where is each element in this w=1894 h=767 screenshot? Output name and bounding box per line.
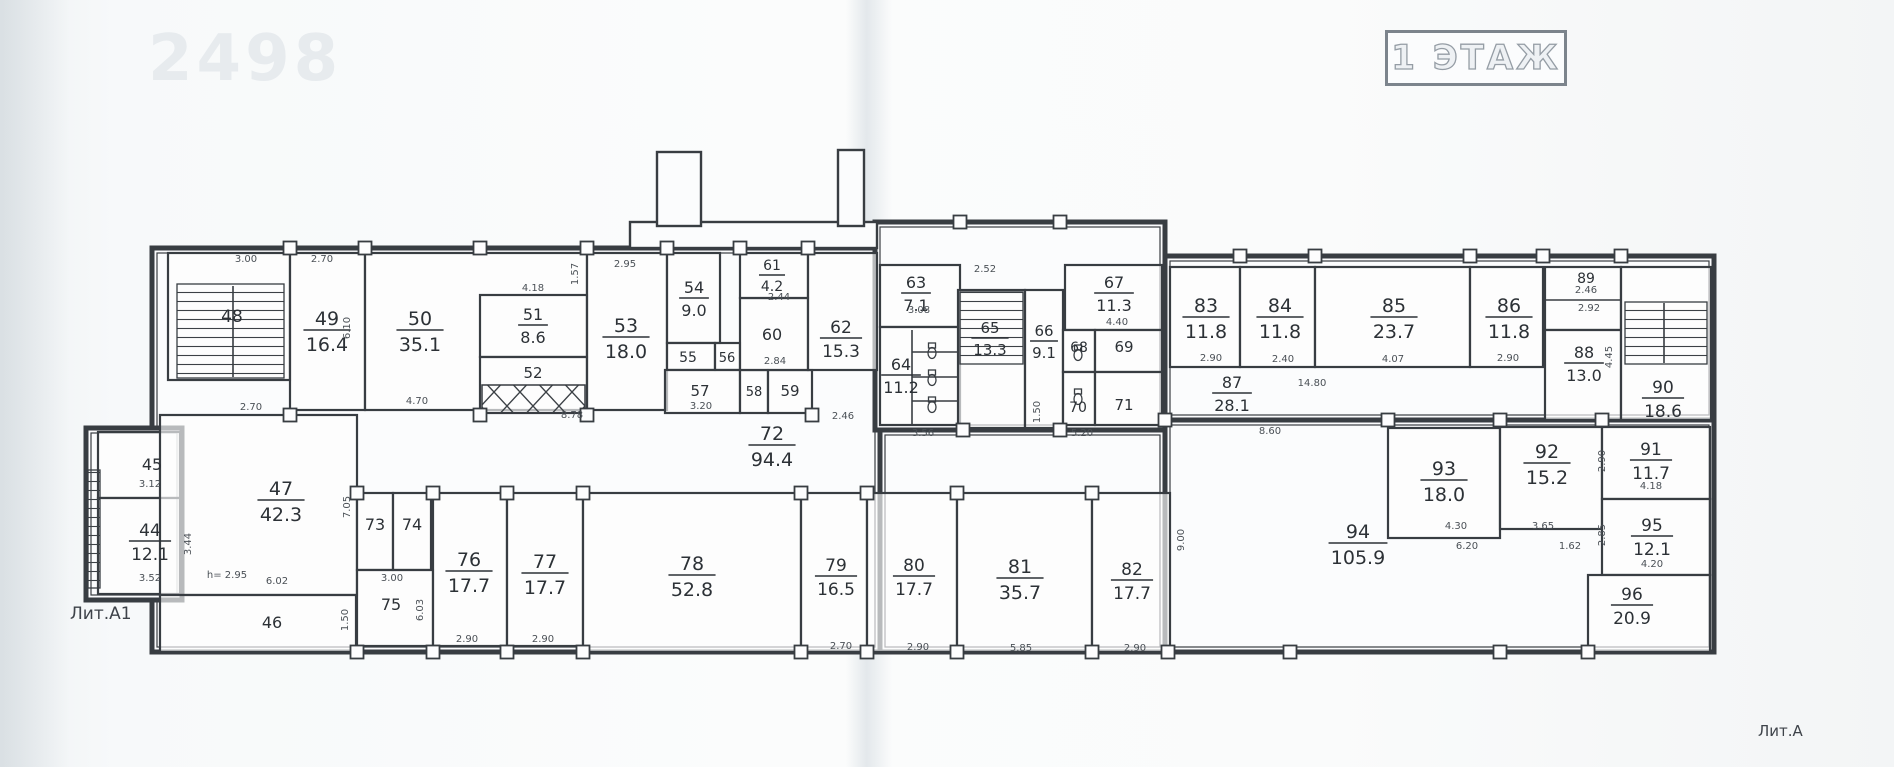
dimension-label: 5.85 [1010,643,1032,654]
dimension-label: 14.80 [1298,378,1327,389]
room-56-label: 56 [719,351,736,366]
wall-pier [501,487,514,500]
room-75-label: 75 [381,595,401,614]
wall-pier [474,409,487,422]
room-number: 92 [1535,441,1559,463]
wall-pier [954,216,967,229]
room-number: 91 [1640,440,1662,460]
floor-plan-drawing: 484916.45035.1518.6525318.0549.055565758… [0,0,1894,767]
room-59-label: 59 [780,382,799,400]
room-70-label: 70 [1069,400,1087,416]
wall-pier [661,242,674,255]
wall-pier [351,646,364,659]
shaft-cross-hatch [482,385,585,413]
room-58-label: 58 [746,385,763,400]
wall-pier [1086,646,1099,659]
room-47 [160,415,357,595]
room-number: 90 [1652,378,1674,398]
room-number: 83 [1194,295,1218,317]
room-area: 12.1 [131,545,169,565]
room-number: 61 [763,258,781,274]
room-number: 59 [780,382,799,400]
wall-pier [795,487,808,500]
room-number: 48 [221,307,243,327]
dimension-label: 8.78 [561,410,583,421]
room-number: 81 [1008,556,1032,578]
staircase-hatch [177,284,284,378]
wall-pier [501,646,514,659]
dimension-label: 2.52 [974,264,996,275]
facade-and-chimneys [630,150,877,248]
dimension-label: 2.84 [764,356,786,367]
room-45-label: 45 [142,455,162,474]
dimension-label: 2.90 [1200,353,1222,364]
wall-pier [861,646,874,659]
dimension-label: 2.70 [311,254,333,265]
dimension-label: 5.20 [1071,428,1093,439]
dimension-label: 2.70 [830,641,852,652]
wall-pier [427,487,440,500]
room-area: 94.4 [751,449,793,471]
wall-pier [951,487,964,500]
room-number: 69 [1114,338,1133,356]
room-number: 75 [381,595,401,614]
dimension-label: 3.52 [139,573,161,584]
wall-pier [1596,414,1609,427]
wall-pier [795,646,808,659]
room-area: 15.3 [822,342,860,362]
room-number: 58 [746,385,763,400]
dimension-label: 3.00 [235,254,257,265]
room-number: 45 [142,455,162,474]
dimension-label: 2.90 [1597,450,1608,472]
wall-pier [577,487,590,500]
dimension-label: 4.18 [522,283,544,294]
room-number: 68 [1070,340,1088,356]
wall-pier [1284,646,1297,659]
dimension-label: 6.03 [415,599,426,621]
room-area: 11.8 [1488,321,1530,343]
room-area: 17.7 [448,575,490,597]
dimension-label: 9.00 [1176,529,1187,551]
dimension-label: 1.50 [340,609,351,631]
room-number: 79 [825,556,847,576]
dimension-label: 3.44 [183,533,194,555]
dimension-label: 6.20 [1456,541,1478,552]
dimension-label: 2.44 [768,292,790,303]
wall-pier [1615,250,1628,263]
wall-pier [951,646,964,659]
dimension-label: 3.12 [139,479,161,490]
room-number: 73 [365,515,385,534]
wall-pier [1234,250,1247,263]
room-area: 18.0 [1423,484,1465,506]
room-area: 52.8 [671,579,713,601]
room-number: 65 [980,319,999,337]
dimension-label: 4.20 [1641,559,1663,570]
dimension-label: 4.70 [406,396,428,407]
room-area: 20.9 [1613,609,1651,629]
room-area: 11.3 [1096,296,1132,315]
room-area: 8.6 [520,328,545,347]
wall-pier [1162,646,1175,659]
room-number: 77 [533,551,557,573]
staircase-hatch [88,470,100,588]
room-area: 28.1 [1214,396,1250,415]
wall-pier [1537,250,1550,263]
room-73-label: 73 [365,515,385,534]
roof-projection [657,152,701,226]
room-area: 13.3 [973,341,1006,359]
room-area: 13.0 [1566,366,1602,385]
room-number: 63 [906,273,926,292]
room-52-label: 52 [523,364,542,382]
room-area: 17.7 [524,577,566,599]
wall-pier [1582,646,1595,659]
room-number: 66 [1034,322,1053,340]
room-area: 11.8 [1185,321,1227,343]
room-number: 76 [457,549,481,571]
dimension-label: 2.70 [240,402,262,413]
room-number: 82 [1121,560,1143,580]
room-number: 72 [760,423,784,445]
dimension-label: 4.18 [1640,481,1662,492]
wall-pier [284,242,297,255]
wall-pier [427,646,440,659]
room-number: 64 [891,355,911,374]
room-number: 44 [139,521,161,541]
wall-pier [359,242,372,255]
liter-a1-label: Лит.А1 [70,604,132,624]
room-57-label: 57 [690,382,709,400]
wall-pier [1494,646,1507,659]
room-74-label: 74 [402,515,422,534]
wall-pier [802,242,815,255]
dimension-label: 2.40 [1272,354,1294,365]
room-69-label: 69 [1114,338,1133,356]
room-number: 88 [1574,343,1594,362]
dimension-label: 6.10 [342,317,353,339]
dimension-label: 6.02 [266,576,288,587]
room-area: 16.5 [817,580,855,600]
room-number: 93 [1432,458,1456,480]
dimension-label: 2.90 [1497,353,1519,364]
room-number: 52 [523,364,542,382]
room-number: 84 [1268,295,1292,317]
room-number: 85 [1382,295,1406,317]
wall-pier [284,409,297,422]
room-area: 11.2 [883,378,919,397]
dimension-label: 3.20 [690,401,712,412]
dimension-label: 3.56 [912,428,934,439]
room-70 [1063,372,1095,425]
dimension-label: 2.90 [456,634,478,645]
room-number: 56 [719,351,736,366]
liter-a-label: Лит.А [1758,722,1803,740]
wall-pier [1054,216,1067,229]
dimension-label: 3.65 [1532,521,1554,532]
scanned-floor-plan-page: 2498 484916.45035.1518.6525318.0549.0555… [0,0,1894,767]
wall-pier [1464,250,1477,263]
room-49 [290,253,365,410]
room-number: 67 [1104,273,1124,292]
wall-pier [474,242,487,255]
room-area: 17.7 [1113,584,1151,604]
room-number: 49 [315,308,339,330]
room-46 [160,595,356,652]
room-number: 74 [402,515,422,534]
room-60-label: 60 [762,325,782,344]
room-number: 94 [1346,521,1370,543]
dimension-label: 4.30 [1445,521,1467,532]
room-number: 96 [1621,585,1643,605]
dimension-label: 4.07 [1382,354,1404,365]
wall-pier [1086,487,1099,500]
room-number: 78 [680,553,704,575]
dimension-label: 2.90 [1124,643,1146,654]
room-area: 17.7 [895,580,933,600]
room-area: 9.0 [681,301,706,320]
dimension-label: 2.95 [614,259,636,270]
room-area: 15.2 [1526,467,1568,489]
room-number: 70 [1069,400,1087,416]
dimension-label: 4.45 [1604,346,1615,368]
wall-pier [1309,250,1322,263]
room-number: 51 [523,305,543,324]
room-number: 47 [269,478,293,500]
wall-pier [1382,414,1395,427]
room-number: 54 [684,278,704,297]
dimension-label: 2.90 [532,634,554,645]
room-number: 60 [762,325,782,344]
wall-pier [806,409,819,422]
room-number: 86 [1497,295,1521,317]
dimension-label: h= 2.95 [207,570,247,581]
dimension-label: 8.60 [1259,426,1281,437]
dimension-label: 1.50 [1032,401,1043,423]
room-area: 18.0 [605,341,647,363]
wall-pier [1054,424,1067,437]
roof-projection [838,150,864,226]
wall-pier [734,242,747,255]
room-area: 12.1 [1633,540,1671,560]
dimension-label: 1.62 [1559,541,1581,552]
wall-pier [1159,414,1172,427]
dimension-label: 4.40 [1106,317,1128,328]
dimension-label: 2.46 [1575,285,1597,296]
room-area: 9.1 [1032,344,1056,362]
dimension-label: 1.57 [570,263,581,285]
room-number: 50 [408,308,432,330]
room-number: 80 [903,556,925,576]
staircase-hatch [1625,302,1707,364]
dimension-label: 2.92 [1578,303,1600,314]
room-area: 35.7 [999,582,1041,604]
wall-pier [957,424,970,437]
dimension-label: 7.05 [342,496,353,518]
room-number: 62 [830,318,852,338]
room-55-label: 55 [679,350,697,366]
dimension-label: 3.00 [381,573,403,584]
room-48-label: 48 [221,307,243,327]
room-number: 53 [614,315,638,337]
dimension-label: 2.90 [907,642,929,653]
room-area: 18.6 [1644,402,1682,422]
room-number: 71 [1114,396,1133,414]
room-area: 23.7 [1373,321,1415,343]
room-46-label: 46 [262,613,282,632]
dimension-label: 2.46 [832,411,854,422]
room-number: 95 [1641,516,1663,536]
wall-pier [577,646,590,659]
room-64 [880,327,960,425]
room-number: 57 [690,382,709,400]
dimension-label: 2.85 [1597,524,1608,546]
floor-title: 1 ЭТАЖ [1391,38,1561,78]
wall-pier [861,487,874,500]
room-area: 35.1 [399,334,441,356]
room-area: 105.9 [1331,547,1385,569]
room-number: 87 [1222,373,1242,392]
room-area: 42.3 [260,504,302,526]
room-number: 46 [262,613,282,632]
dimension-label: 3.08 [908,305,930,316]
floor-title-box: 1 ЭТАЖ [1385,30,1567,86]
wall-pier [1494,414,1507,427]
room-area: 11.8 [1259,321,1301,343]
room-71-label: 71 [1114,396,1133,414]
room-68-label: 68 [1070,340,1088,356]
wall-pier [581,242,594,255]
room-number: 55 [679,350,697,366]
